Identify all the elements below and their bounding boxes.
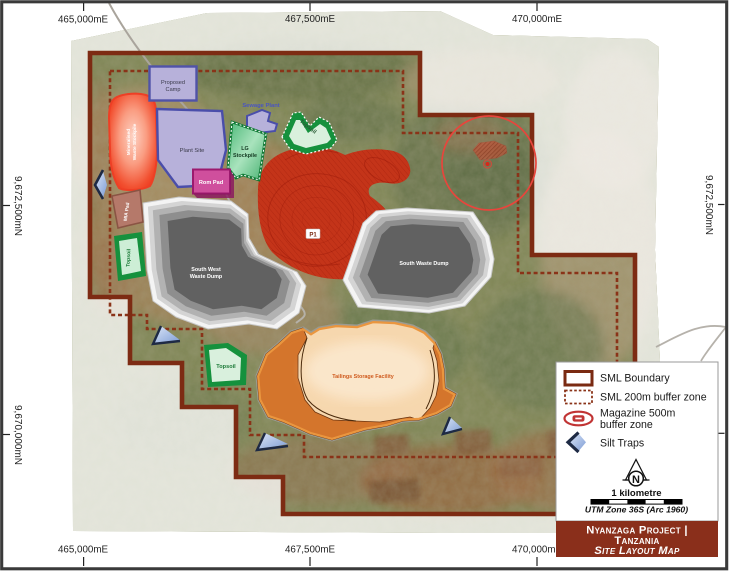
svg-text:470,000mE: 470,000mE (512, 545, 563, 556)
svg-text:Rom Pad: Rom Pad (199, 180, 224, 186)
svg-text:Plant Site: Plant Site (180, 148, 205, 154)
svg-text:9,670,000mN: 9,670,000mN (12, 405, 23, 465)
svg-text:Mineralised: Mineralised (126, 129, 132, 155)
svg-text:N: N (632, 474, 640, 486)
svg-text:UTM Zone 36S (Arc 1960): UTM Zone 36S (Arc 1960) (585, 505, 688, 515)
svg-text:Topsoil: Topsoil (126, 248, 133, 267)
svg-text:Camp: Camp (166, 87, 181, 93)
svg-text:Site Layout Map: Site Layout Map (594, 545, 680, 557)
svg-text:South Waste Dump: South Waste Dump (399, 261, 449, 267)
svg-text:470,000mE: 470,000mE (512, 14, 563, 25)
svg-text:P1: P1 (309, 233, 317, 239)
svg-text:465,000mE: 465,000mE (58, 545, 109, 556)
svg-text:Sewage Plant: Sewage Plant (242, 103, 279, 109)
svg-text:South West: South West (191, 267, 221, 273)
svg-text:Waste Dump: Waste Dump (190, 274, 223, 280)
svg-text:SML 200m buffer zone: SML 200m buffer zone (600, 392, 707, 404)
svg-text:9,672,500mN: 9,672,500mN (12, 176, 23, 236)
svg-text:Silt Traps: Silt Traps (600, 438, 644, 450)
svg-text:467,500mE: 467,500mE (285, 545, 336, 556)
svg-text:465,000mE: 465,000mE (58, 15, 109, 26)
svg-text:Topsoil: Topsoil (216, 364, 236, 370)
svg-text:Waste Stockpile: Waste Stockpile (132, 123, 138, 160)
svg-text:Stockpile: Stockpile (233, 153, 257, 159)
svg-text:buffer zone: buffer zone (600, 419, 653, 431)
svg-text:LG: LG (241, 146, 249, 152)
svg-text:Proposed: Proposed (161, 80, 185, 86)
svg-text:467,500mE: 467,500mE (285, 14, 336, 25)
svg-text:9,672,500mN: 9,672,500mN (703, 175, 714, 235)
svg-text:SML Boundary: SML Boundary (600, 373, 670, 385)
svg-text:1 kilometre: 1 kilometre (611, 488, 661, 499)
svg-text:Tailings Storage Facility: Tailings Storage Facility (332, 374, 394, 380)
svg-text:Magazine 500m: Magazine 500m (600, 408, 676, 420)
